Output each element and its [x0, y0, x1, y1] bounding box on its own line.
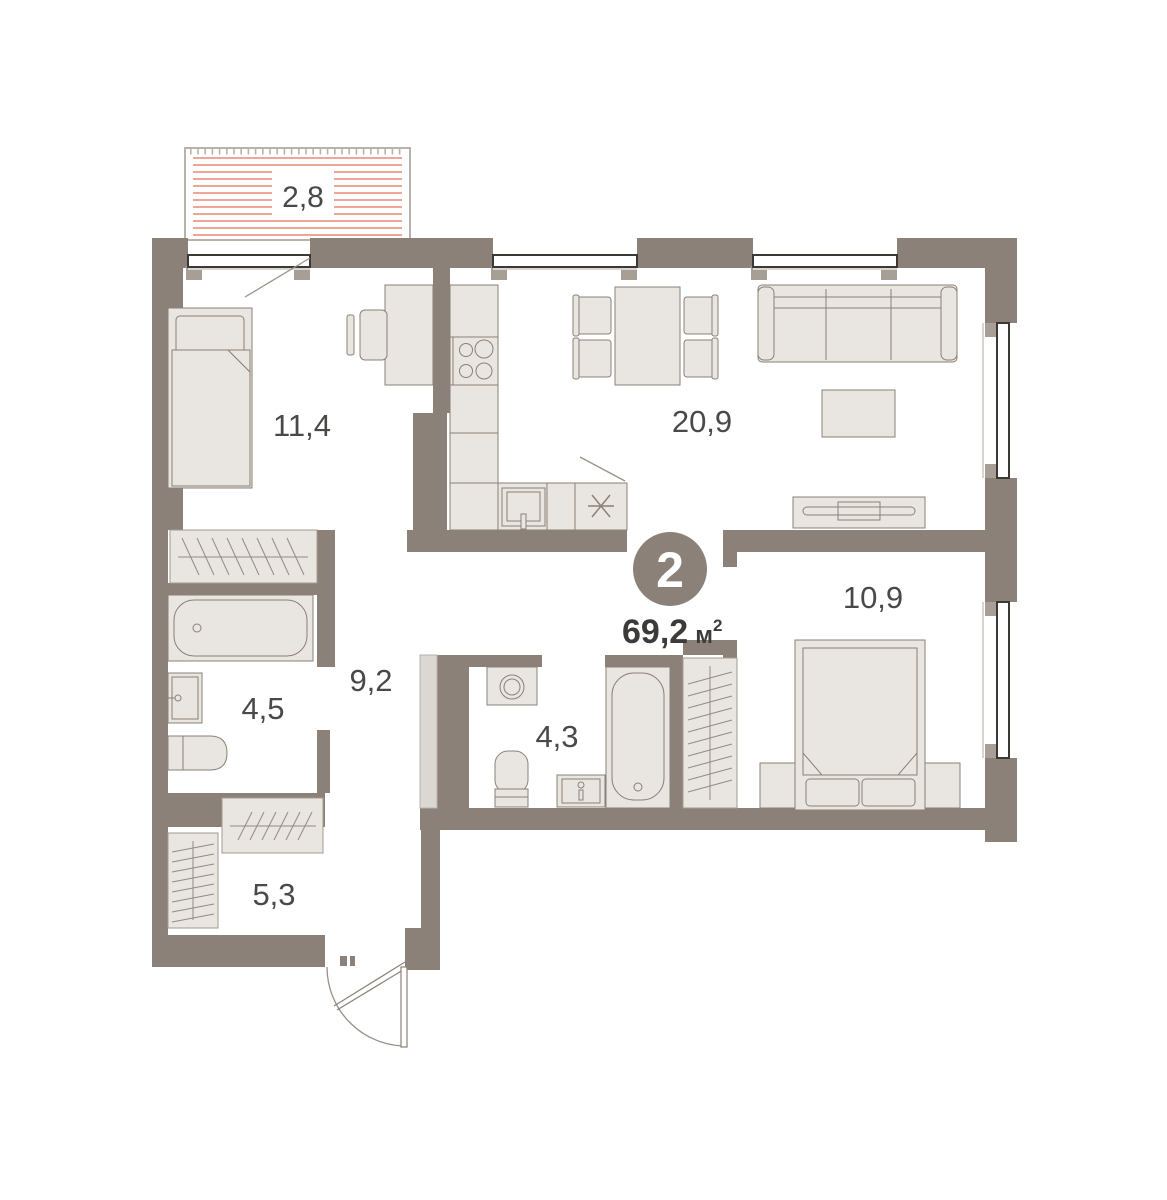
room-area-label-bathroom2: 4,3: [535, 719, 578, 754]
total-area-unit-sup: 2: [713, 616, 722, 635]
coffee-table: [822, 390, 895, 437]
nightstand: [760, 763, 795, 808]
window-icon: [997, 323, 1009, 478]
bathroom-sink: [557, 775, 605, 807]
toilet: [495, 751, 528, 807]
bathroom1-furniture: [168, 530, 317, 770]
window-icon: [493, 255, 637, 267]
total-area-label: 69,2м2: [622, 613, 722, 651]
room-area-label-living: 20,9: [672, 404, 732, 439]
bedroom2-furniture: [683, 640, 960, 810]
wardrobe: [168, 833, 218, 928]
window-icon: [753, 255, 897, 267]
balcony-area-label: 2,8: [282, 181, 324, 214]
single-bed: [168, 308, 252, 488]
door-leaf: [401, 967, 407, 1047]
living-furniture: [573, 285, 957, 528]
floor-plan-svg: 2,8 11,4 20,9 10,9 9,2 4,5 4,3 5,3 2 69,…: [0, 0, 1167, 1200]
desk-chair: [347, 310, 387, 360]
rooms-count-number: 2: [656, 542, 684, 598]
bathtub: [168, 595, 313, 661]
rooms-count-badge: 2: [633, 532, 707, 606]
sofa: [758, 285, 957, 362]
room-area-label-bathroom1: 4,5: [241, 691, 284, 726]
window-icon: [997, 602, 1009, 758]
wardrobe: [170, 530, 317, 583]
total-area-unit: м: [695, 622, 713, 649]
wardrobe: [222, 798, 323, 853]
nightstand: [925, 763, 960, 808]
window-icon: [188, 255, 310, 267]
desk: [385, 285, 433, 385]
room-area-label-bedroom1: 11,4: [273, 408, 331, 443]
entrance-door: [327, 956, 408, 1047]
bedroom1-furniture: [168, 285, 433, 488]
tv-stand: [793, 497, 925, 528]
total-area-value: 69,2: [622, 613, 688, 651]
toilet: [168, 736, 227, 770]
room-area-label-hallway: 9,2: [349, 663, 392, 698]
bathroom-sink: [168, 673, 202, 723]
double-bed: [795, 640, 925, 810]
room-area-label-storage: 5,3: [252, 877, 295, 912]
floor-plan-page: 2,8 11,4 20,9 10,9 9,2 4,5 4,3 5,3 2 69,…: [0, 0, 1167, 1200]
room-area-label-bedroom2: 10,9: [843, 580, 903, 615]
dining-table: [573, 287, 718, 385]
door-leaf: [334, 962, 408, 1010]
bathtub: [606, 667, 670, 808]
washing-machine: [487, 667, 537, 705]
stove: [453, 337, 498, 385]
wardrobe: [683, 658, 737, 808]
